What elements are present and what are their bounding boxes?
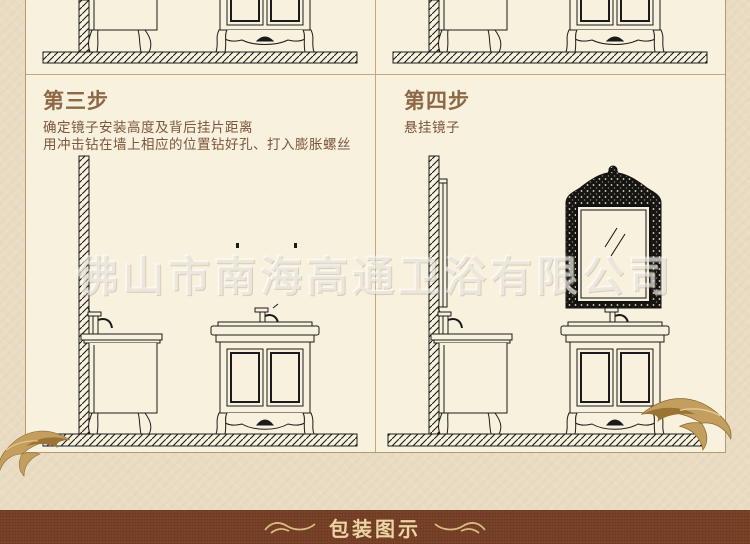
cropped-vanity-diagram	[26, 0, 375, 74]
banner-swirl-left-icon	[263, 518, 319, 536]
instruction-sheet: 第三步 确定镜子安装高度及背后挂片距离 用冲击钻在墙上相应的位置钻好孔、打入膨胀…	[25, 0, 726, 453]
previous-steps-row	[26, 0, 725, 75]
step3-title: 第三步	[43, 85, 375, 115]
cropped-vanity-diagram	[376, 0, 725, 74]
flourish-right-icon	[634, 382, 738, 465]
step4-title: 第四步	[404, 85, 725, 115]
panel-step2-cropped	[26, 0, 375, 74]
steps-row: 第三步 确定镜子安装高度及背后挂片距离 用冲击钻在墙上相应的位置钻好孔、打入膨胀…	[26, 75, 725, 452]
step4-line-1: 悬挂镜子	[404, 120, 725, 137]
panel-step2b-cropped	[375, 0, 725, 74]
banner-swirl-right-icon	[431, 518, 487, 536]
step4-description: 悬挂镜子	[404, 120, 725, 137]
footer-banner-label: 包装图示	[329, 513, 421, 542]
footer-banner: 包装图示	[0, 510, 750, 544]
drill-hole-left	[236, 243, 239, 248]
panel-step-3: 第三步 确定镜子安装高度及背后挂片距离 用冲击钻在墙上相应的位置钻好孔、打入膨胀…	[26, 75, 375, 452]
flourish-left-icon	[0, 424, 74, 480]
step3-header: 第三步 确定镜子安装高度及背后挂片距离 用冲击钻在墙上相应的位置钻好孔、打入膨胀…	[26, 75, 375, 154]
drill-hole-right	[294, 243, 297, 248]
step3-line-1: 确定镜子安装高度及背后挂片距离	[43, 120, 375, 137]
step3-line-2: 用冲击钻在墙上相应的位置钻好孔、打入膨胀螺丝	[43, 137, 375, 154]
step3-description: 确定镜子安装高度及背后挂片距离 用冲击钻在墙上相应的位置钻好孔、打入膨胀螺丝	[43, 120, 375, 154]
step4-header: 第四步 悬挂镜子	[376, 75, 725, 137]
